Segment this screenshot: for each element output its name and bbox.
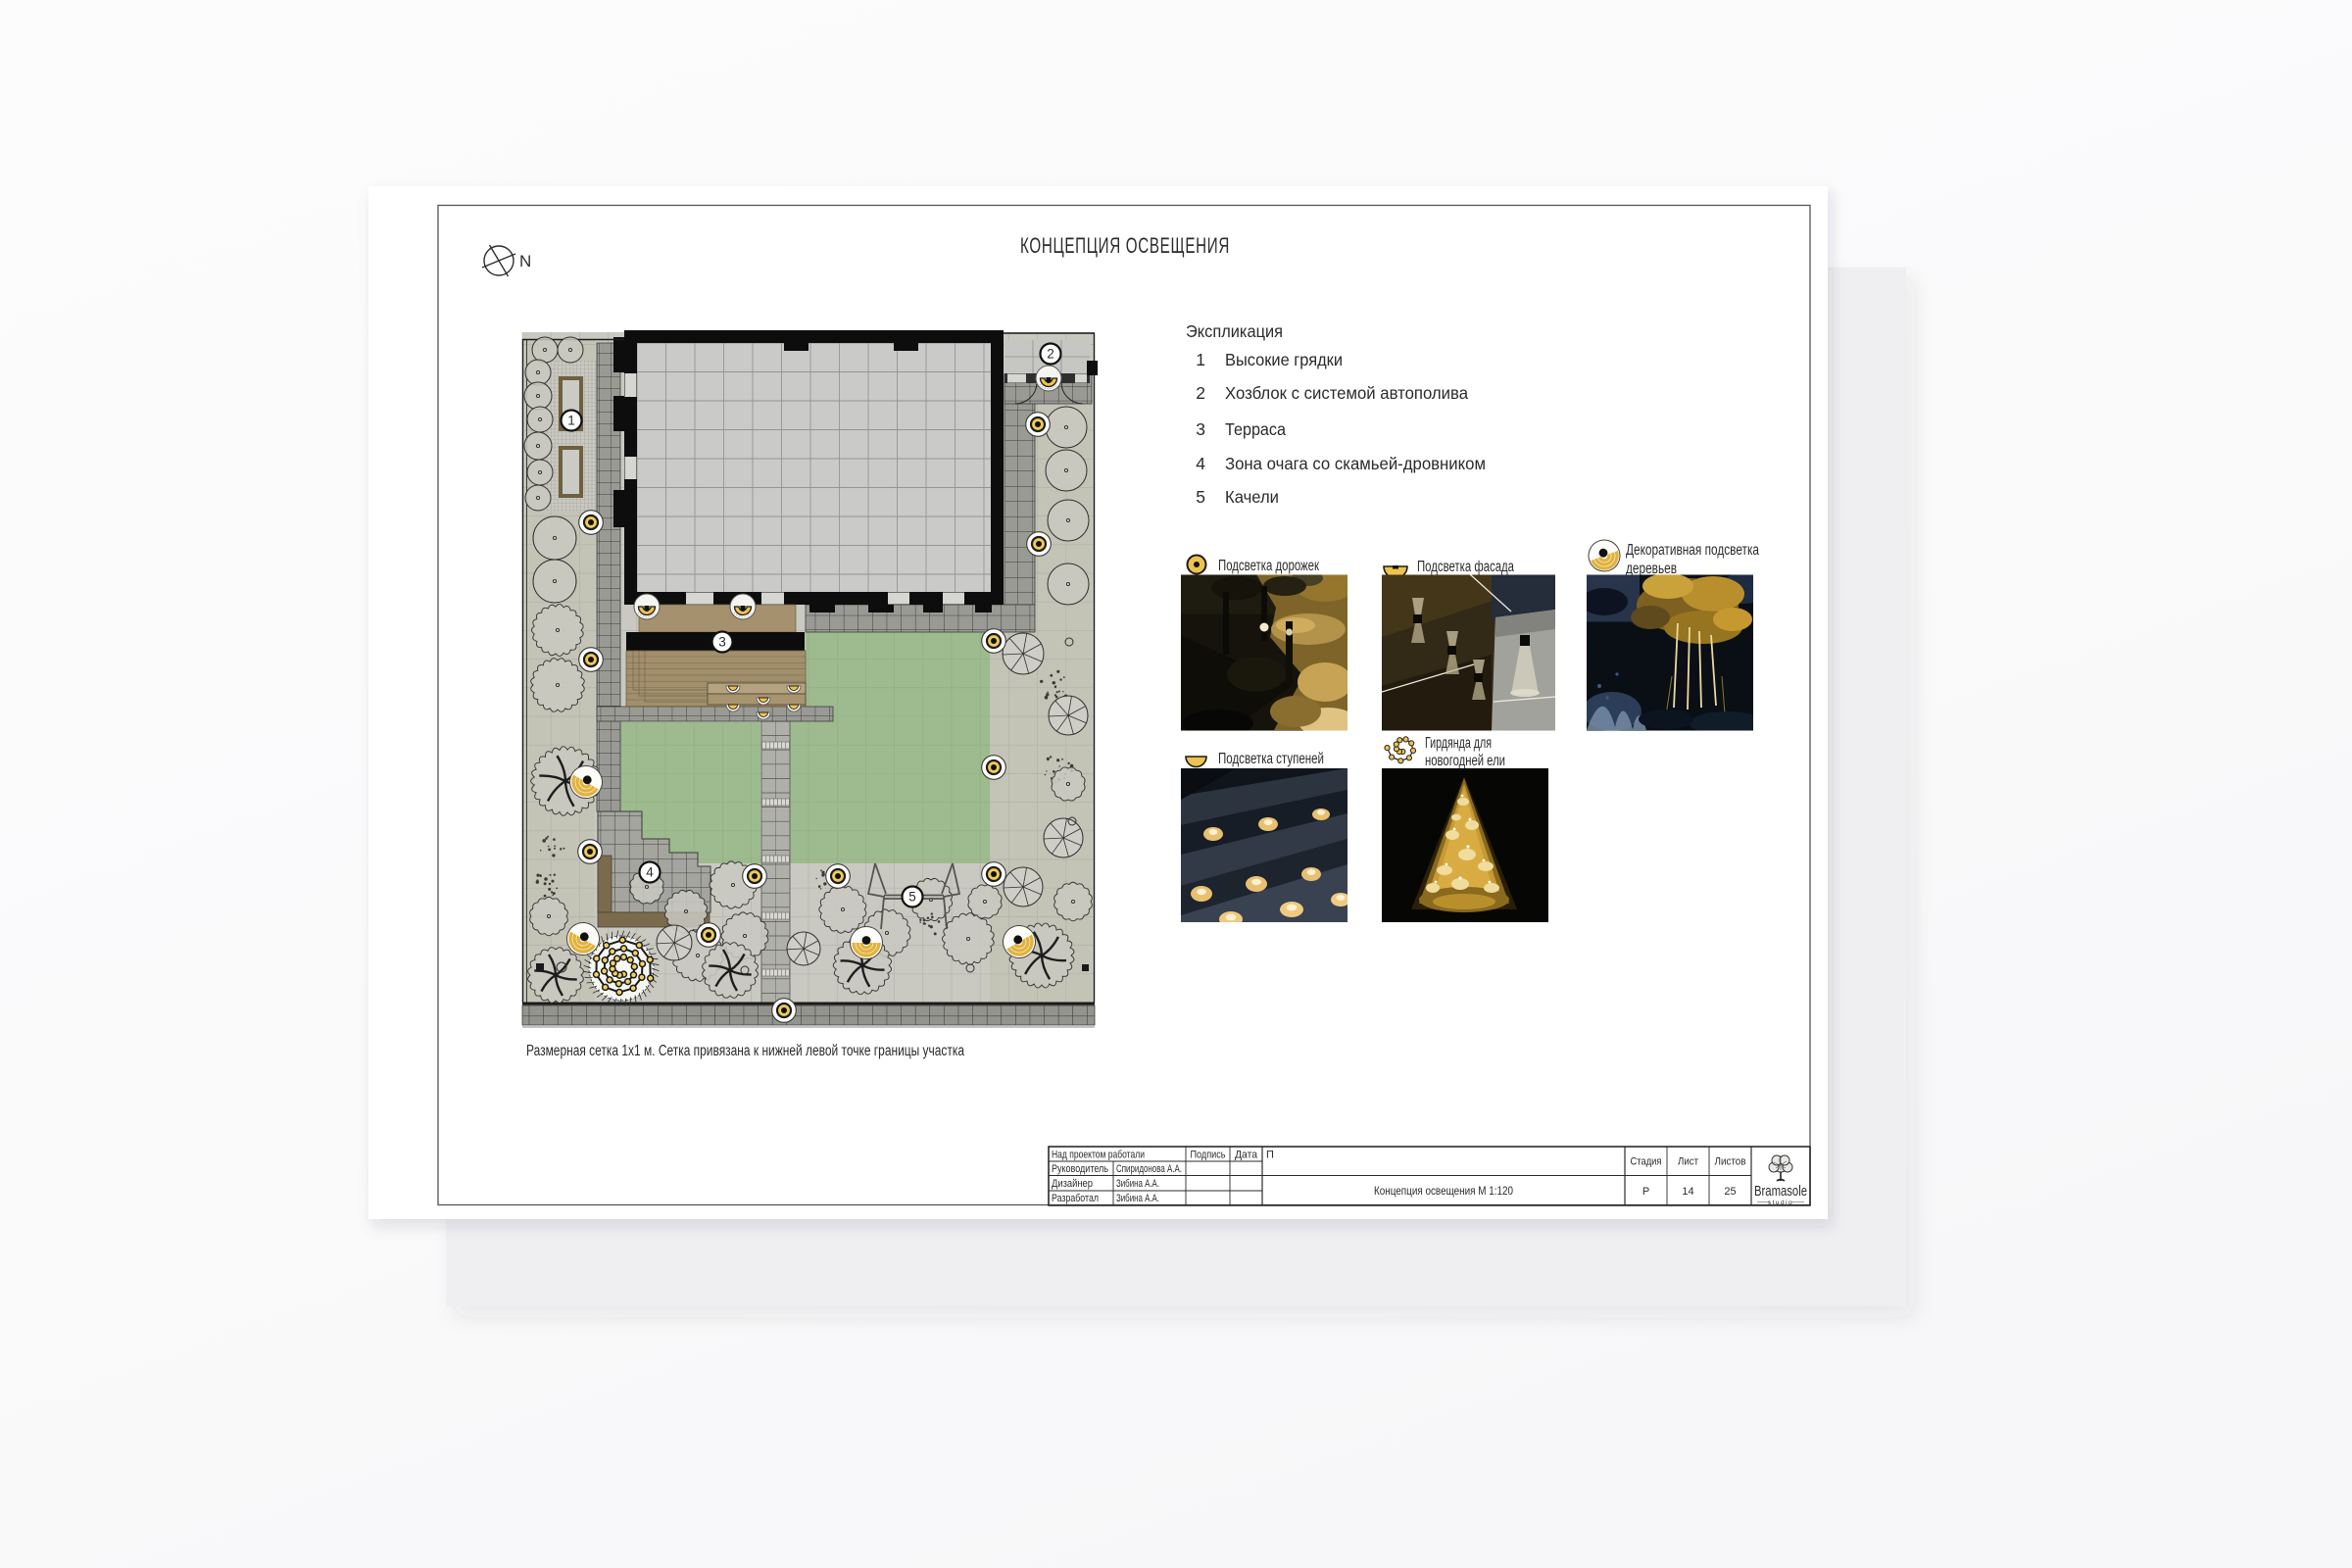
svg-text:Разработал: Разработал bbox=[1052, 1193, 1099, 1204]
svg-text:4: 4 bbox=[646, 865, 654, 880]
svg-text:Высокие грядки: Высокие грядки bbox=[1225, 350, 1343, 369]
svg-text:Р: Р bbox=[1642, 1186, 1649, 1198]
svg-text:деревьев: деревьев bbox=[1626, 561, 1677, 577]
svg-text:Подсветка дорожек: Подсветка дорожек bbox=[1218, 558, 1319, 574]
svg-text:Над проектом работали: Над проектом работали bbox=[1052, 1150, 1145, 1161]
svg-text:14: 14 bbox=[1682, 1186, 1693, 1198]
svg-text:Экспликация: Экспликация bbox=[1186, 321, 1283, 341]
svg-text:3: 3 bbox=[1196, 419, 1205, 439]
svg-text:3: 3 bbox=[718, 635, 726, 650]
svg-text:Зибина А.А.: Зибина А.А. bbox=[1116, 1178, 1159, 1190]
svg-text:5: 5 bbox=[1196, 487, 1205, 507]
svg-text:Дизайнер: Дизайнер bbox=[1052, 1178, 1093, 1190]
svg-text:Спиридонова А.А.: Спиридонова А.А. bbox=[1116, 1163, 1182, 1175]
svg-text:Bramasole: Bramasole bbox=[1754, 1184, 1807, 1200]
svg-text:studio: studio bbox=[1768, 1200, 1793, 1206]
svg-text:2: 2 bbox=[1047, 347, 1054, 362]
svg-text:Руководитель: Руководитель bbox=[1052, 1163, 1108, 1175]
svg-text:новогодней ели: новогодней ели bbox=[1425, 753, 1505, 769]
svg-text:Гирдянда для: Гирдянда для bbox=[1425, 735, 1492, 752]
svg-text:5: 5 bbox=[908, 890, 916, 905]
svg-text:П: П bbox=[1266, 1150, 1274, 1161]
svg-text:Стадия: Стадия bbox=[1631, 1156, 1662, 1168]
svg-text:1: 1 bbox=[1196, 350, 1205, 369]
svg-text:Концепция освещения М 1:120: Концепция освещения М 1:120 bbox=[1374, 1184, 1513, 1198]
svg-text:4: 4 bbox=[1196, 454, 1205, 473]
svg-text:КОНЦЕПЦИЯ ОСВЕЩЕНИЯ: КОНЦЕПЦИЯ ОСВЕЩЕНИЯ bbox=[1020, 233, 1230, 258]
svg-text:Подпись: Подпись bbox=[1191, 1150, 1226, 1161]
svg-text:1: 1 bbox=[567, 414, 575, 428]
svg-text:Зибина А.А.: Зибина А.А. bbox=[1116, 1193, 1159, 1204]
svg-text:25: 25 bbox=[1724, 1186, 1736, 1198]
svg-text:Декоративная подсветка: Декоративная подсветка bbox=[1626, 542, 1759, 559]
svg-text:Подсветка ступеней: Подсветка ступеней bbox=[1218, 751, 1324, 767]
svg-text:Размерная сетка 1х1 м. Сетка п: Размерная сетка 1х1 м. Сетка привязана к… bbox=[526, 1043, 964, 1059]
svg-text:Дата: Дата bbox=[1235, 1150, 1258, 1161]
svg-text:Зона очага со скамьей-дровнико: Зона очага со скамьей-дровником bbox=[1225, 454, 1486, 473]
svg-text:Подсветка фасада: Подсветка фасада bbox=[1417, 559, 1514, 575]
svg-text:2: 2 bbox=[1196, 383, 1205, 403]
svg-text:Листов: Листов bbox=[1715, 1156, 1746, 1168]
svg-text:Хозблок с системой автополива: Хозблок с системой автополива bbox=[1225, 383, 1468, 403]
svg-text:N: N bbox=[519, 252, 531, 270]
svg-text:Терраса: Терраса bbox=[1225, 419, 1286, 439]
svg-text:Качели: Качели bbox=[1225, 487, 1279, 507]
svg-text:Лист: Лист bbox=[1678, 1156, 1698, 1168]
